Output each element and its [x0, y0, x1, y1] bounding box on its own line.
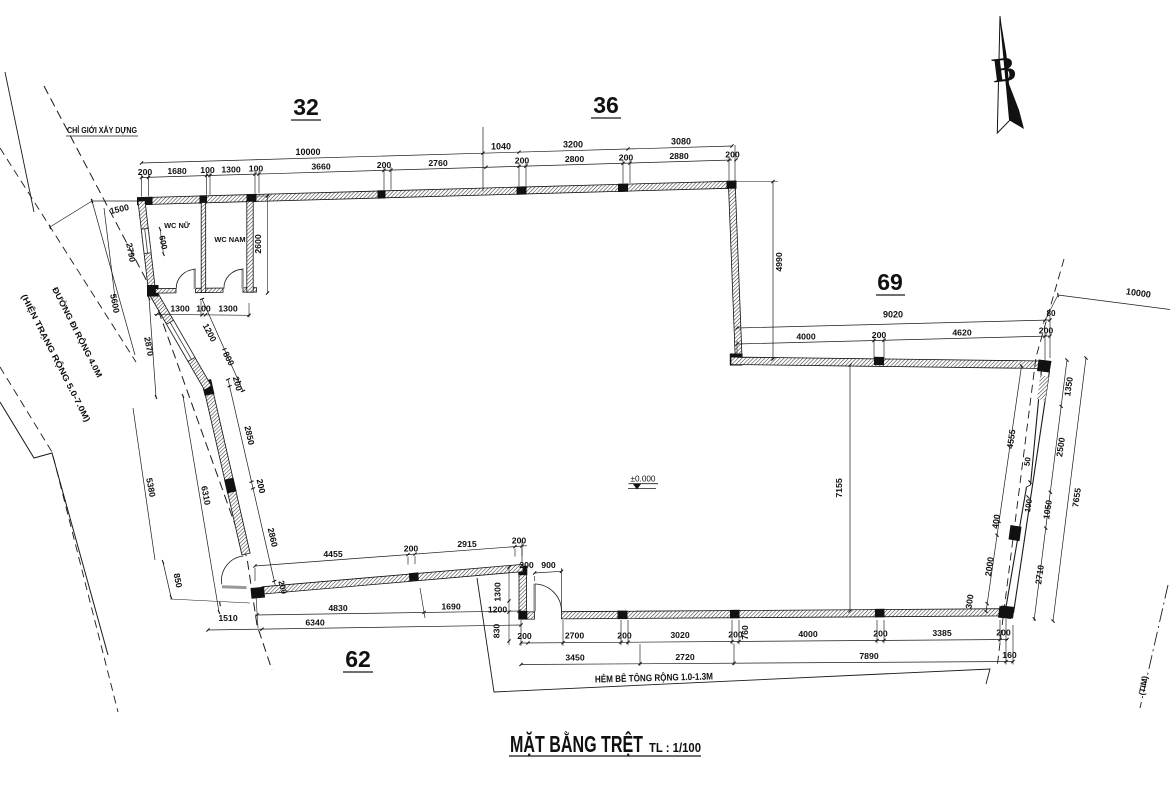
svg-text:200: 200	[512, 535, 527, 545]
svg-text:200: 200	[519, 560, 534, 570]
svg-text:3660: 3660	[311, 162, 330, 172]
svg-text:1680: 1680	[167, 166, 186, 176]
svg-text:62: 62	[345, 646, 371, 672]
svg-text:2720: 2720	[675, 652, 694, 662]
svg-text:9020: 9020	[883, 310, 903, 320]
svg-text:1300: 1300	[221, 164, 240, 174]
svg-text:3385: 3385	[932, 628, 951, 638]
svg-text:36: 36	[593, 92, 619, 118]
svg-text:200: 200	[138, 167, 153, 177]
svg-text:69: 69	[877, 269, 903, 295]
svg-text:200: 200	[404, 543, 419, 553]
svg-text:2880: 2880	[669, 151, 688, 161]
svg-text:2700: 2700	[565, 631, 584, 641]
svg-text:1690: 1690	[441, 602, 460, 612]
svg-text:2760: 2760	[428, 158, 447, 168]
svg-text:1040: 1040	[491, 142, 511, 152]
svg-text:200: 200	[515, 156, 530, 166]
svg-text:1200: 1200	[488, 605, 507, 615]
svg-text:200: 200	[617, 630, 632, 640]
svg-text:7890: 7890	[859, 651, 878, 661]
svg-text:4455: 4455	[323, 549, 342, 559]
svg-text:WC NAM: WC NAM	[214, 235, 245, 244]
svg-text:4620: 4620	[952, 328, 971, 338]
svg-text:100: 100	[249, 164, 264, 174]
svg-text:3080: 3080	[671, 137, 691, 147]
svg-text:2800: 2800	[565, 154, 584, 164]
svg-text:2915: 2915	[457, 539, 476, 549]
svg-text:4000: 4000	[798, 629, 817, 639]
svg-text:CHỈ GIỚI XÂY DỰNG: CHỈ GIỚI XÂY DỰNG	[67, 126, 137, 135]
svg-text:760: 760	[740, 625, 750, 640]
svg-text:1300: 1300	[170, 304, 189, 314]
svg-text:200: 200	[517, 631, 532, 641]
svg-text:900: 900	[541, 560, 556, 570]
svg-text:80: 80	[1046, 309, 1056, 318]
svg-text:6340: 6340	[305, 617, 324, 627]
svg-text:4830: 4830	[328, 603, 347, 613]
svg-text:WC NỮ: WC NỮ	[164, 221, 191, 230]
svg-text:1300: 1300	[218, 304, 237, 314]
svg-text:10000: 10000	[295, 147, 320, 157]
svg-text:200: 200	[996, 628, 1011, 638]
svg-text:200: 200	[619, 153, 634, 163]
svg-text:4000: 4000	[796, 332, 815, 342]
svg-text:B: B	[990, 49, 1018, 91]
svg-text:200: 200	[873, 628, 888, 638]
svg-text:1510: 1510	[218, 613, 237, 623]
svg-text:7155: 7155	[834, 478, 844, 497]
svg-text:3450: 3450	[565, 653, 584, 663]
svg-text:2600: 2600	[253, 234, 263, 253]
svg-text:±0.000: ±0.000	[631, 475, 656, 484]
svg-text:200: 200	[725, 150, 740, 160]
svg-text:4990: 4990	[774, 252, 784, 271]
svg-text:200: 200	[1039, 326, 1054, 336]
svg-text:3020: 3020	[670, 630, 689, 640]
svg-text:TL : 1/100: TL : 1/100	[649, 741, 701, 755]
svg-text:100: 100	[196, 304, 211, 314]
svg-text:32: 32	[293, 94, 319, 120]
svg-text:3200: 3200	[563, 140, 583, 150]
svg-text:160: 160	[1002, 650, 1017, 660]
svg-text:MẶT BẰNG TRỆT: MẶT BẰNG TRỆT	[510, 730, 643, 757]
svg-text:100: 100	[200, 165, 215, 175]
svg-text:1300: 1300	[493, 582, 503, 601]
